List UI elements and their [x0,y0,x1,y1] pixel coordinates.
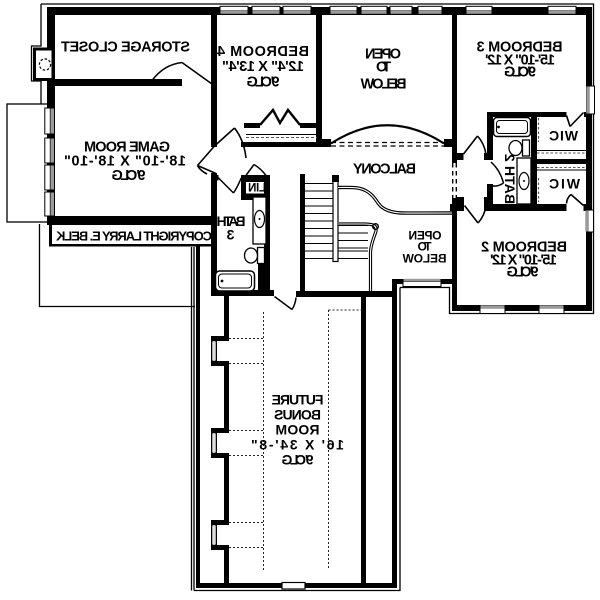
svg-text:BELOW: BELOW [402,252,447,266]
svg-text:9' CLG: 9' CLG [247,75,280,91]
svg-text:12'4" X 13'4": 12'4" X 13'4" [222,59,304,75]
svg-text:BALCONY: BALCONY [353,162,416,178]
svg-text:3: 3 [226,227,234,243]
svg-text:BELOW: BELOW [360,77,406,93]
svg-text:WIC: WIC [549,128,578,144]
svg-text:9' CLG: 9' CLG [281,452,313,468]
svg-text:LIN: LIN [248,183,266,195]
svg-text:WIC: WIC [549,176,580,192]
svg-text:STORAGE CLOSET: STORAGE CLOSET [61,40,190,56]
svg-text:BONUS: BONUS [274,407,321,423]
svg-text:9' CLG: 9' CLG [507,265,539,281]
svg-text:ROOM: ROOM [276,422,320,438]
svg-text:COPYRIGHT LARRY E. BELK: COPYRIGHT LARRY E. BELK [55,229,212,244]
svg-text:FUTURE: FUTURE [272,392,324,408]
svg-text:BATH 2: BATH 2 [502,154,518,204]
svg-text:BEDROOM 4: BEDROOM 4 [217,44,309,60]
svg-text:9' CLG: 9' CLG [504,65,536,81]
svg-text:16' X 34'-8": 16' X 34'-8" [251,437,344,453]
svg-text:TO: TO [376,60,391,76]
svg-text:9' CLG: 9' CLG [112,168,146,184]
